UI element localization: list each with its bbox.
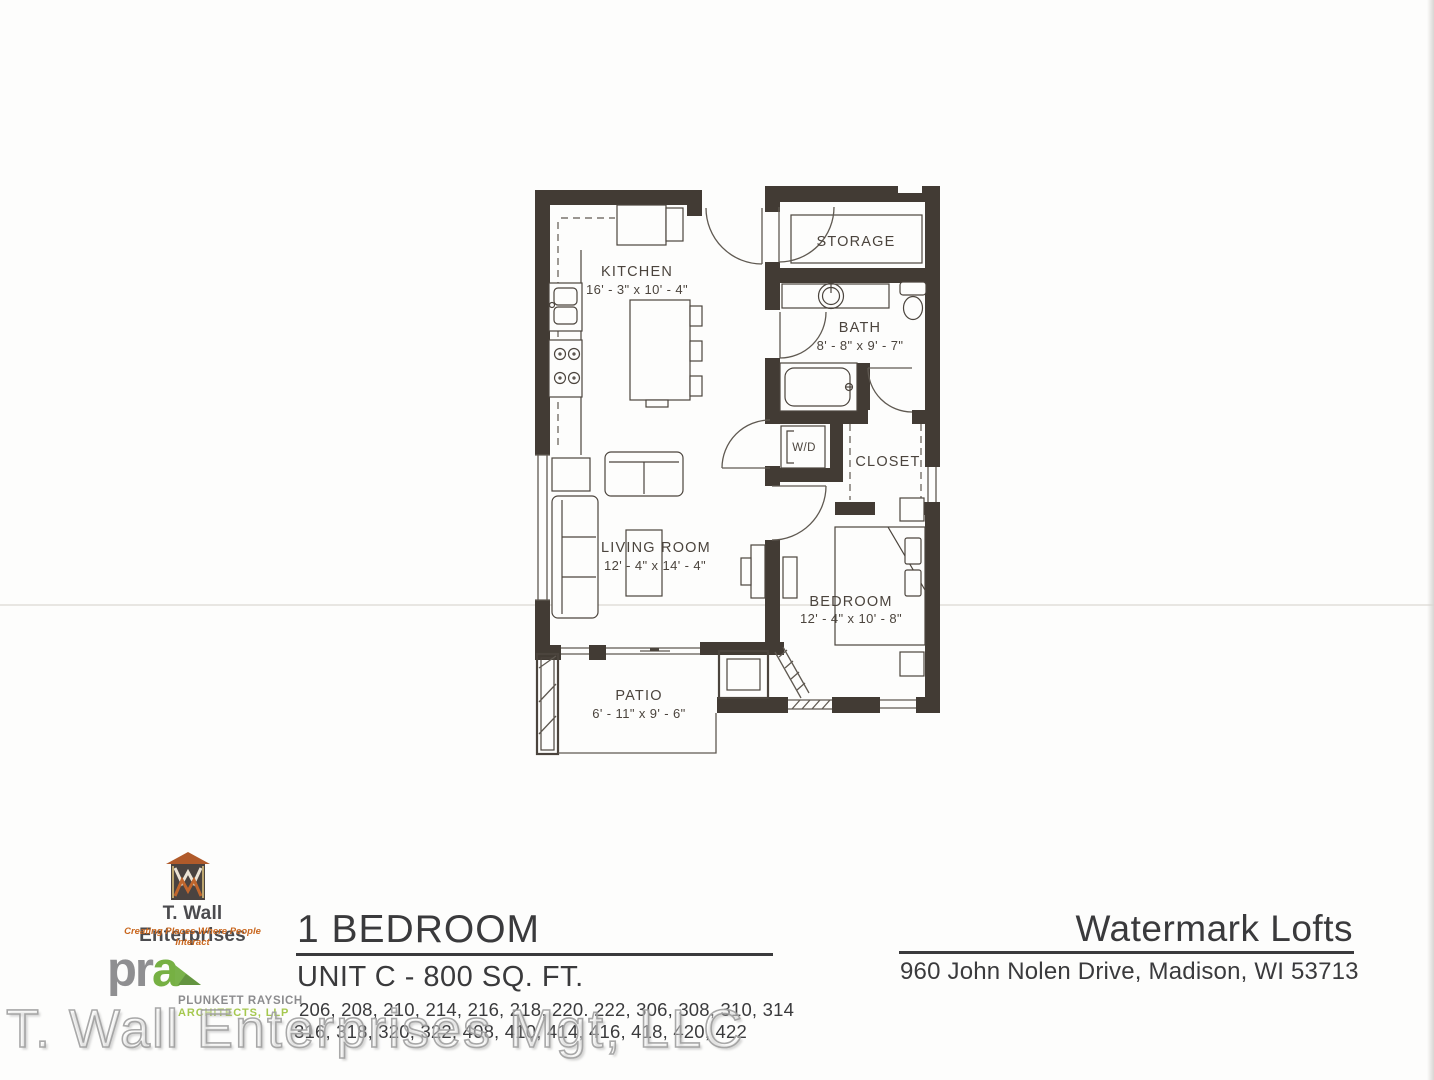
living-room-label: LIVING ROOM (601, 540, 711, 556)
floorplan-flyer-page: KITCHEN 16' - 3" x 10' - 4" STORAGE BATH… (0, 0, 1434, 1080)
bedroom-window-1 (788, 700, 832, 709)
kitchen-island (630, 300, 702, 407)
pra-logo-a: a (152, 943, 177, 997)
pillow (905, 538, 921, 564)
pra-triangle-icon (175, 965, 202, 986)
plan-type-title: 1 BEDROOM (297, 908, 540, 952)
closet-walkthrough-door (868, 368, 912, 412)
toilet (900, 282, 926, 320)
living-room-dims: 12' - 4" x 14' - 4" (604, 558, 706, 573)
loveseat (605, 452, 683, 496)
pra-firm-line2: ARCHITECTS, LLP (178, 1007, 289, 1019)
patio-dims: 6' - 11" x 9' - 6" (592, 706, 685, 721)
bedroom-dims: 12' - 4" x 10' - 8" (800, 611, 902, 626)
storage-label: STORAGE (816, 234, 895, 250)
tv (741, 558, 751, 585)
pra-firm-line1: PLUNKETT RAYSICH (178, 995, 303, 1007)
bed (835, 527, 925, 645)
title-rule-right (899, 951, 1354, 954)
entry-door (706, 208, 762, 264)
side-table (552, 458, 590, 491)
living-room-furniture (552, 452, 765, 618)
patio-label: PATIO (615, 688, 662, 704)
cabinet (666, 208, 683, 241)
pillow (905, 570, 921, 596)
wd-label: W/D (792, 442, 816, 454)
kitchen-fixtures (549, 205, 702, 455)
bay-chase (719, 651, 768, 698)
unit-numbers-line1: 206, 208, 210, 214, 216, 218, 220. 222, … (299, 999, 794, 1021)
unit-numbers-line2: 316, 318, 320, 322, 408, 410, 414, 416, … (294, 1021, 747, 1043)
tv-console (751, 545, 765, 598)
vanity-counter (782, 284, 889, 308)
nightstand (900, 652, 924, 676)
refrigerator (617, 205, 666, 245)
stove (549, 340, 582, 397)
stool (690, 376, 702, 396)
kitchen-sink (549, 283, 582, 331)
sofa (552, 496, 598, 618)
bathtub (780, 363, 857, 411)
living-room-left-window (535, 455, 550, 600)
bedroom-label: BEDROOM (809, 594, 892, 610)
stool (690, 306, 702, 326)
bedroom-door (772, 486, 826, 540)
property-address: 960 John Nolen Drive, Madison, WI 53713 (900, 958, 1353, 986)
bedroom-window-2 (880, 700, 916, 708)
twall-logo-icon (163, 852, 213, 900)
patio-slider-door (606, 648, 700, 654)
bath-label: BATH (839, 320, 881, 336)
patio-elements (537, 654, 716, 754)
bedroom-furniture (783, 498, 925, 676)
wd-door (722, 420, 770, 468)
unit-title: UNIT C - 800 SQ. FT. (297, 961, 584, 994)
pra-logo-pr: pr (107, 943, 152, 997)
pra-logo: pra (107, 946, 202, 995)
stool (690, 341, 702, 361)
nightstand (900, 498, 924, 521)
closet-end-window (928, 467, 936, 502)
planter (537, 654, 558, 754)
kitchen-label: KITCHEN (601, 264, 673, 280)
property-name: Watermark Lofts (900, 908, 1353, 950)
title-rule-left (296, 953, 773, 956)
closet-label: CLOSET (855, 454, 920, 470)
bath-dims: 8' - 8" x 9' - 7" (817, 338, 904, 353)
kitchen-dims: 16' - 3" x 10' - 4" (586, 282, 688, 297)
living-room-window (561, 648, 589, 654)
dresser (783, 557, 797, 598)
